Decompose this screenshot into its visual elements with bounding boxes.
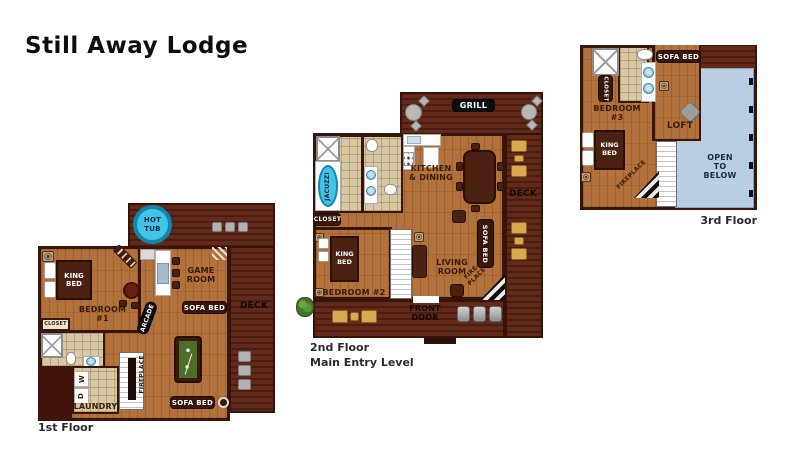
- bush: [296, 297, 314, 317]
- deck-chair: [238, 365, 251, 376]
- bed-pillow: [582, 150, 594, 166]
- rocking-chair: [511, 248, 527, 260]
- bed-pillow: [582, 132, 594, 148]
- deck-chair: [238, 222, 248, 232]
- laundry-label: LAUNDRY: [72, 402, 119, 411]
- stairs: [656, 141, 677, 207]
- bedroom3-label: BEDROOM #3: [593, 104, 641, 122]
- sink: [366, 186, 376, 196]
- floor3-label: 3rd Floor: [690, 214, 757, 229]
- deck-chair: [238, 351, 251, 362]
- closet3-label: CLOSET: [603, 76, 609, 101]
- planter: [457, 306, 470, 322]
- jacuzzi-label: JACUZZI: [325, 172, 332, 201]
- page-title: Still Away Lodge: [25, 33, 248, 59]
- floor1-deck-label: DECK: [236, 301, 272, 311]
- sofa-bed-label: SOFA BED: [482, 224, 490, 262]
- toilet: [66, 352, 76, 365]
- stairs: [390, 229, 412, 299]
- washer: W: [74, 371, 89, 387]
- floor1-deck-right: [229, 246, 275, 413]
- rocking-chair: [511, 222, 527, 234]
- dining-chair: [456, 162, 463, 171]
- nightstand-icon: [42, 251, 54, 262]
- bed-pillow: [318, 238, 329, 249]
- king-bed-1: KING BED: [56, 260, 92, 300]
- kitchen-sink: [407, 136, 421, 144]
- toilet: [637, 49, 653, 60]
- bedroom2-label: BEDROOM #2: [320, 288, 388, 297]
- sofa-bed-tag: SOFA BED: [182, 301, 227, 314]
- closet1-label: CLOSET: [44, 322, 67, 328]
- sink: [366, 170, 376, 180]
- rocking-chair: [511, 165, 527, 177]
- pool-felt: [179, 341, 197, 378]
- dining-chair: [456, 182, 463, 191]
- toilet: [366, 139, 378, 152]
- deck-chair: [225, 222, 235, 232]
- pool-cue: [185, 353, 193, 374]
- deck-chair: [238, 379, 251, 390]
- dining-chair: [471, 143, 480, 150]
- hot-tub: HOT TUB: [133, 205, 172, 244]
- floor1-label: 1st Floor: [38, 421, 93, 436]
- sofa-bed-tag: SOFA BED: [656, 50, 701, 63]
- planter: [489, 306, 502, 322]
- dining-chair: [497, 182, 504, 191]
- floor3-wall-band: [700, 46, 755, 70]
- stair-stripes: [212, 247, 227, 260]
- patio-table: [521, 104, 537, 120]
- dining-table: [463, 150, 496, 204]
- toilet: [384, 184, 397, 195]
- game-room-label: GAME ROOM: [184, 266, 218, 284]
- floor2-label: 2nd Floor Main Entry Level: [310, 341, 414, 371]
- planter: [473, 306, 486, 322]
- table-icon: [659, 81, 669, 91]
- hot-tub-label: HOT TUB: [144, 216, 161, 232]
- stool: [131, 302, 139, 309]
- shower: [316, 136, 340, 162]
- front-door-label: FRONT DOOR: [405, 304, 445, 322]
- front-door-opening: [413, 296, 439, 303]
- side-table: [514, 237, 524, 245]
- fireplace-1: FIREPLACE: [136, 352, 150, 396]
- railing-mark: [749, 162, 753, 169]
- jacuzzi: JACUZZI: [318, 165, 338, 207]
- bed-pillow: [318, 251, 329, 262]
- console-table: [140, 249, 155, 260]
- floor2-deck-right: [505, 133, 543, 338]
- loft-label: LOFT: [663, 121, 697, 131]
- bed-pillow: [44, 281, 56, 298]
- bar-stool: [172, 281, 180, 289]
- shower: [41, 333, 63, 358]
- king-bed-3: KING BED: [594, 130, 625, 170]
- railing-mark: [749, 134, 753, 141]
- porch-step: [424, 338, 456, 344]
- armchair: [452, 210, 466, 223]
- rocking-chair: [511, 140, 527, 152]
- washer-label: W: [77, 375, 85, 383]
- kitchen-dining-label: KITCHEN & DINING: [404, 164, 458, 182]
- closet-tag: CLOSET: [314, 213, 341, 226]
- sink: [643, 67, 654, 78]
- railing-mark: [749, 106, 753, 113]
- table-icon: [218, 397, 229, 408]
- stool: [119, 300, 127, 307]
- bar-stool: [172, 269, 180, 277]
- railing-mark: [749, 190, 753, 197]
- patio-table: [405, 104, 422, 121]
- dining-chair: [471, 205, 480, 212]
- fireplace1-label: FIREPLACE: [140, 355, 147, 393]
- rocking-chair: [332, 310, 348, 323]
- bed-pillow: [44, 262, 56, 279]
- nightstand-icon: [581, 172, 591, 182]
- round-table: [123, 282, 140, 299]
- sofa-bed-tag: SOFA BED: [170, 396, 215, 409]
- dining-chair: [497, 162, 504, 171]
- grill-tag: GRILL: [452, 99, 495, 112]
- side-table: [514, 155, 524, 162]
- railing-mark: [749, 78, 753, 85]
- dryer-label: D: [77, 393, 85, 399]
- pool-table: [174, 336, 202, 383]
- floor2-deck-label: DECK: [506, 189, 540, 199]
- stair-banister: [128, 358, 136, 400]
- closet-tag-vertical: CLOSET: [598, 75, 613, 102]
- wall-block: [38, 366, 72, 420]
- sink: [86, 357, 96, 366]
- bedroom1-label: BEDROOM #1: [75, 305, 130, 323]
- sink: [643, 83, 654, 94]
- open-to-below-label: OPEN TO BELOW: [696, 153, 744, 181]
- sofa: [412, 245, 427, 278]
- bar-stool: [172, 257, 180, 265]
- floorplan-canvas: Still Away Lodge DECK HOT TUB KING BED B…: [0, 0, 800, 467]
- side-table: [350, 312, 359, 321]
- rocking-chair: [361, 310, 377, 323]
- closet-1: CLOSET: [41, 318, 70, 331]
- shower: [592, 48, 619, 76]
- mini-fridge: [157, 263, 169, 284]
- table-icon: [414, 232, 424, 242]
- deck-chair: [212, 222, 222, 232]
- king-bed-2: KING BED: [330, 236, 359, 282]
